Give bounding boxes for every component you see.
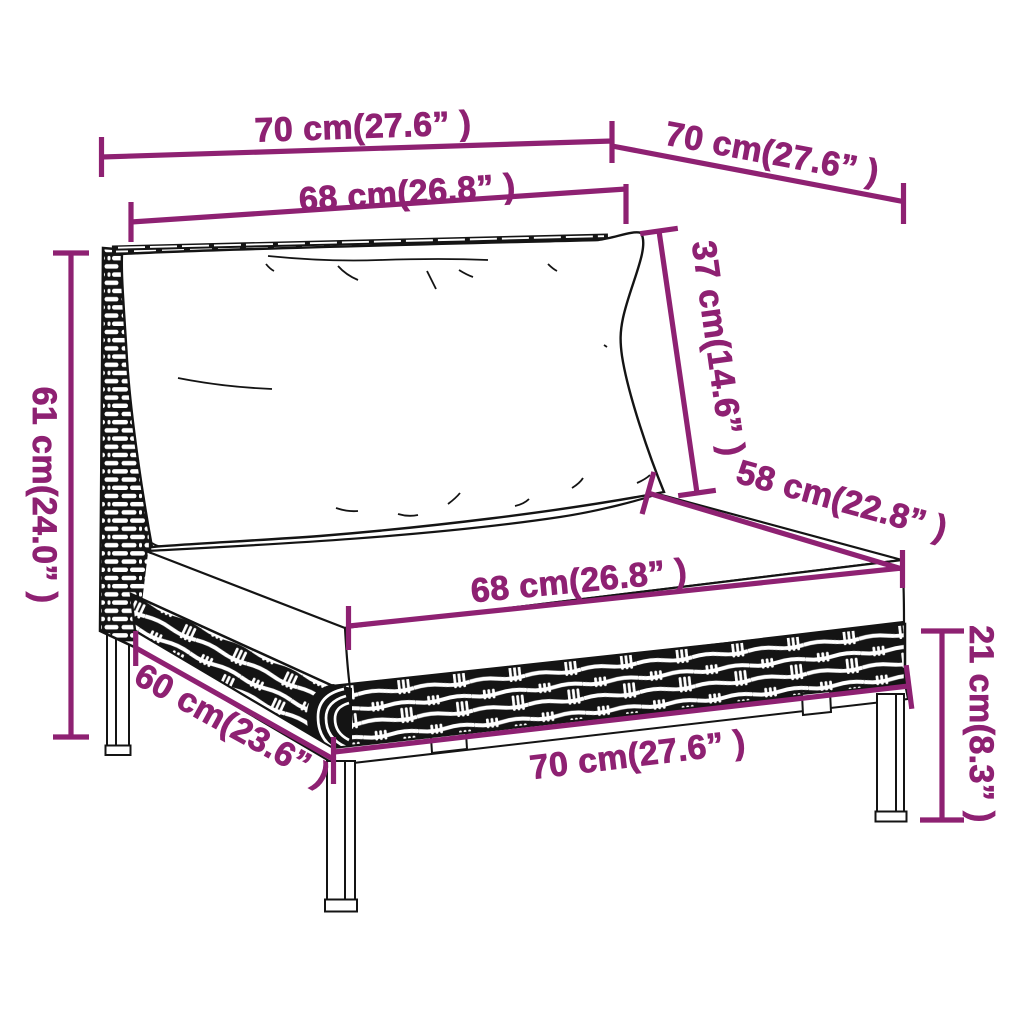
svg-text:37 cm(14.6” ): 37 cm(14.6” ) xyxy=(684,238,752,458)
svg-text:70 cm(27.6” ): 70 cm(27.6” ) xyxy=(254,104,472,150)
svg-text:61 cm(24.0” ): 61 cm(24.0” ) xyxy=(25,387,63,604)
svg-text:21 cm(8.3” ): 21 cm(8.3” ) xyxy=(962,625,1000,823)
svg-text:68 cm(26.8” ): 68 cm(26.8” ) xyxy=(298,167,517,219)
svg-text:70 cm(27.6” ): 70 cm(27.6” ) xyxy=(662,115,882,192)
